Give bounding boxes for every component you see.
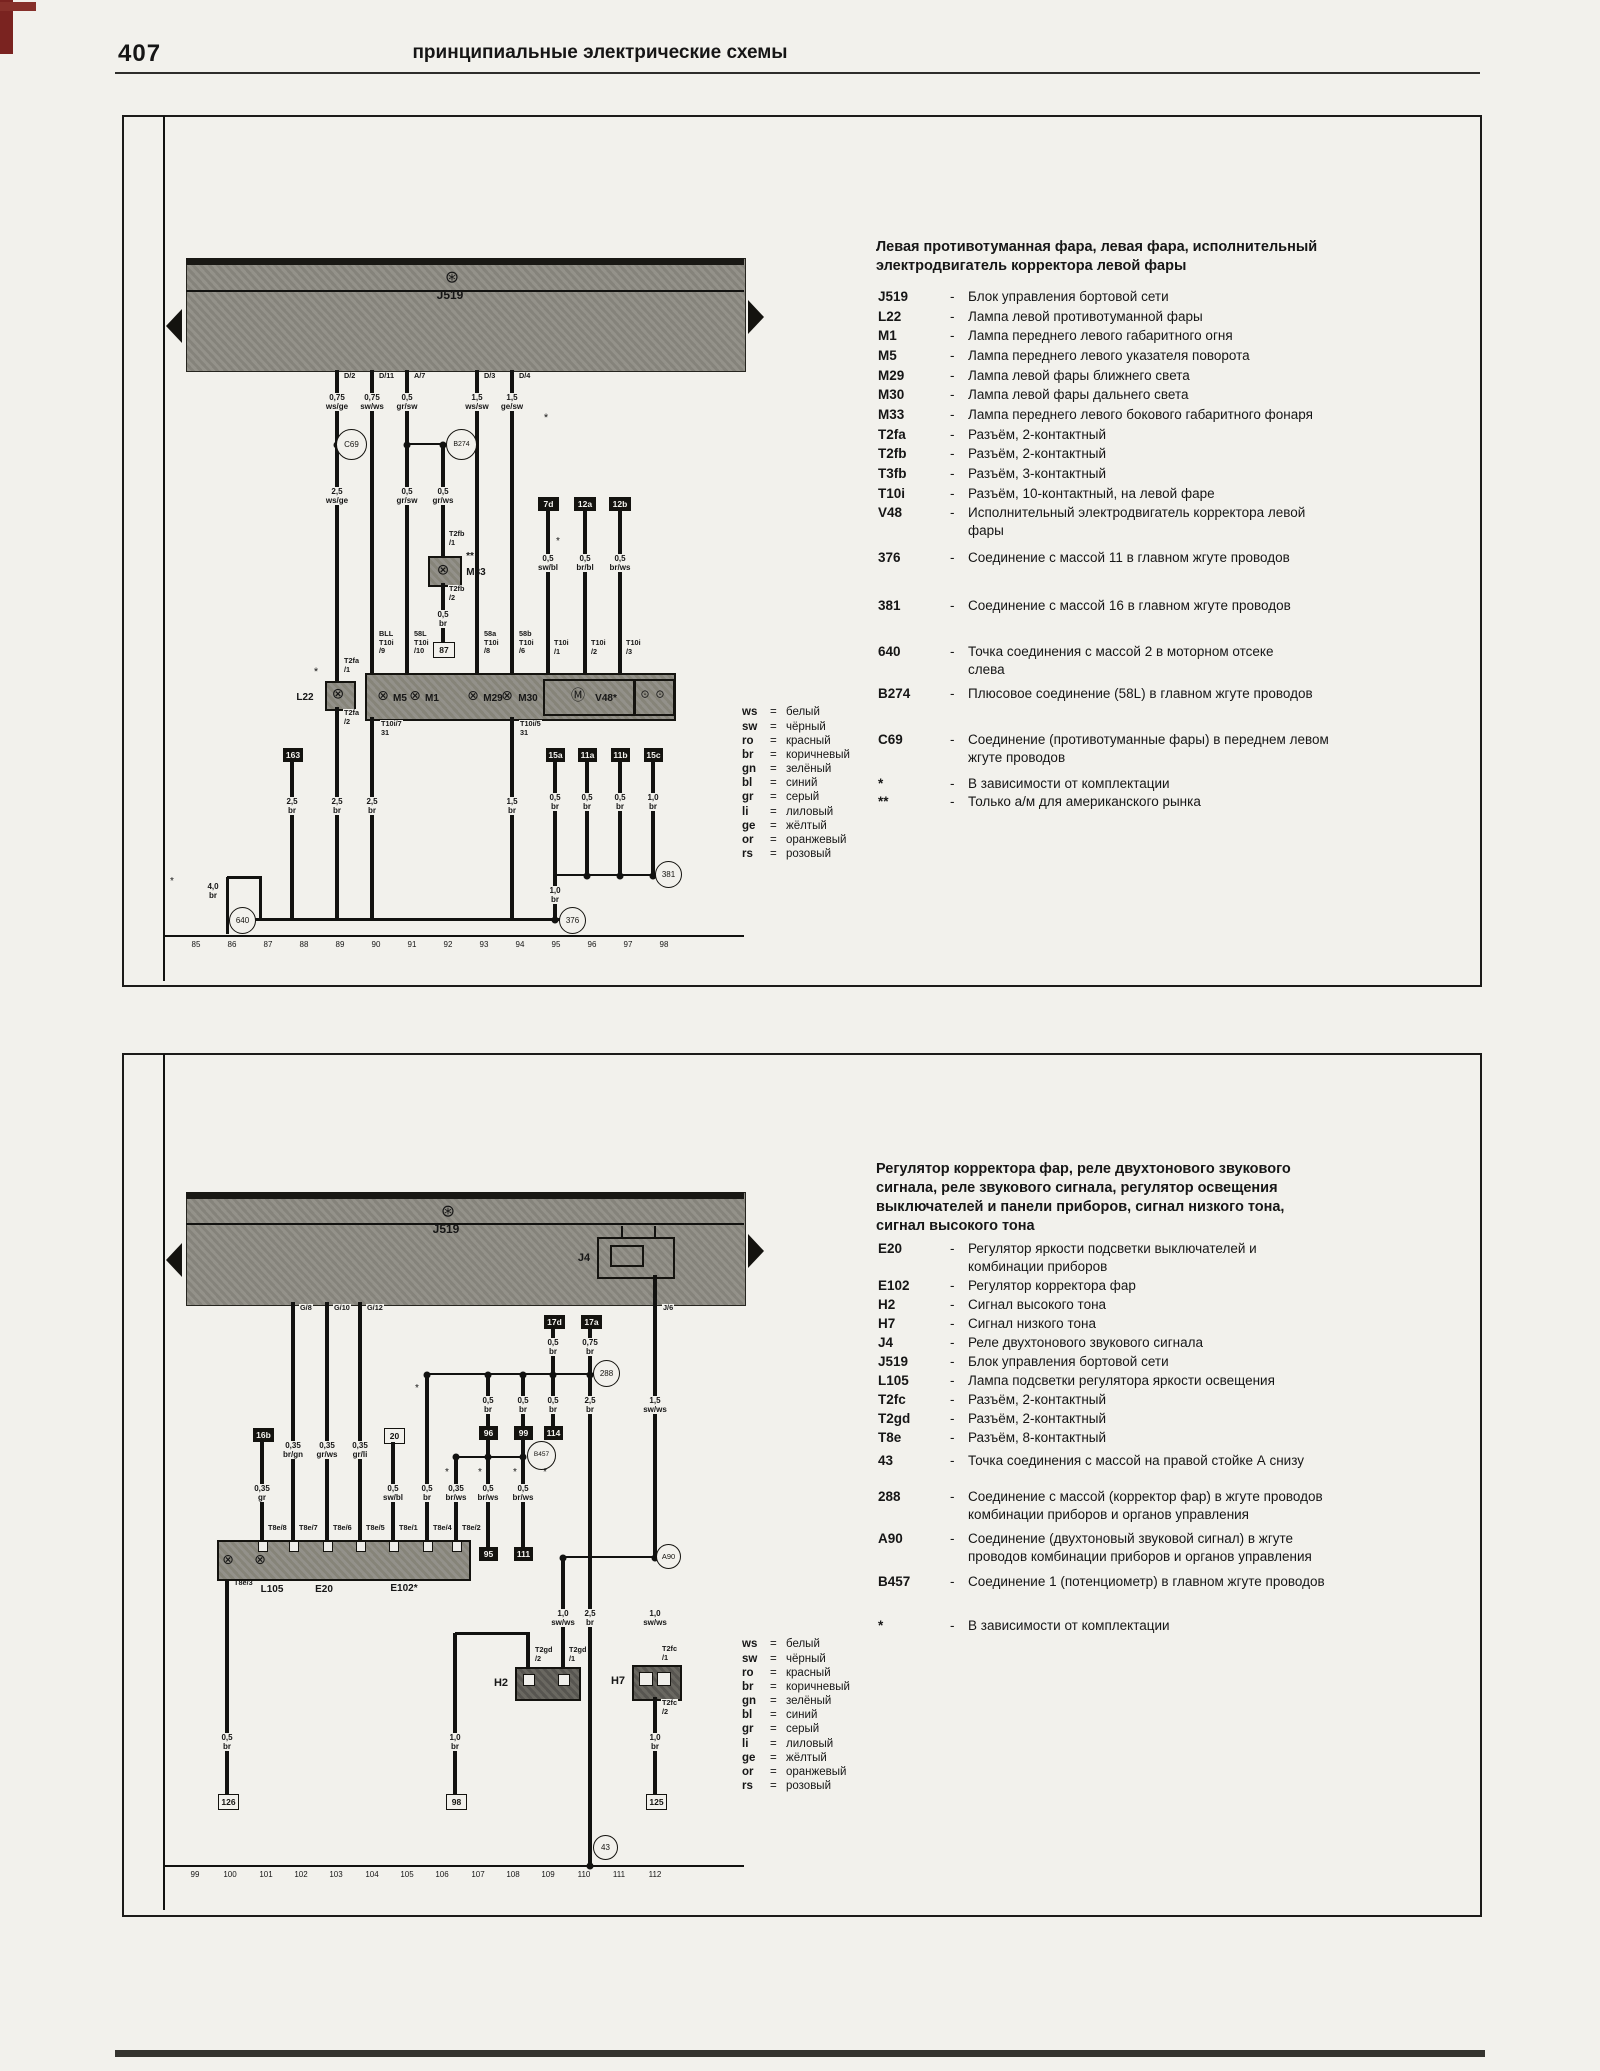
color-code-row: gr=серый bbox=[742, 1723, 850, 1737]
color-name: белый bbox=[786, 707, 820, 719]
legend-item: J519-Блок управления бортовой сети bbox=[878, 1353, 1438, 1371]
wire bbox=[186, 290, 744, 292]
legend-item-key: T2fb bbox=[878, 445, 950, 463]
diagram-text: 97 bbox=[624, 941, 633, 949]
legend-item: T2fa-Разъём, 2-контактный bbox=[878, 426, 1438, 444]
pin-contact bbox=[639, 1672, 653, 1686]
legend-title: Регулятор корректора фар, реле двухтонов… bbox=[876, 1160, 1416, 1237]
pin-label: G/8 bbox=[299, 1304, 313, 1313]
wire-color-table: ws=белыйsw=чёрныйro=красныйbr=коричневый… bbox=[742, 1638, 850, 1794]
legend-item: A90-Соединение (двухтоновый звуковой сиг… bbox=[878, 1530, 1438, 1567]
legend-item-dash: - bbox=[950, 445, 968, 463]
color-code: rs bbox=[742, 1781, 770, 1793]
diagram-text: 105 bbox=[400, 1871, 413, 1879]
color-code: gr bbox=[742, 792, 770, 804]
wire bbox=[427, 1373, 600, 1376]
wire-label: 0,35 gr/li bbox=[351, 1441, 369, 1459]
legend-item-text: Разъём, 2-контактный bbox=[968, 1391, 1106, 1409]
equals-sign: = bbox=[770, 849, 786, 861]
legend-item: E102-Регулятор корректора фар bbox=[878, 1277, 1438, 1295]
wire-label: 0,5 br/ws bbox=[512, 1484, 535, 1502]
crossref-box-163: 163 bbox=[283, 748, 303, 762]
legend-item: L105-Лампа подсветки регулятора яркости … bbox=[878, 1372, 1438, 1390]
diagram-text: 92 bbox=[444, 941, 453, 949]
legend-item-text: В зависимости от комплектации bbox=[968, 775, 1170, 793]
color-name: жёлтый bbox=[786, 1753, 827, 1765]
pin-label: T8e/1 bbox=[398, 1524, 419, 1533]
color-code: ro bbox=[742, 1668, 770, 1680]
legend-item-dash: - bbox=[950, 1353, 968, 1371]
legend-item-dash: - bbox=[950, 406, 968, 424]
crossref-box-125: 125 bbox=[646, 1794, 667, 1810]
color-code-row: li=лиловый bbox=[742, 1737, 850, 1751]
bus-bar bbox=[186, 258, 746, 372]
footer-bar bbox=[115, 2050, 1485, 2057]
legend-item-key: T2fc bbox=[878, 1391, 950, 1409]
diagram-text: ** bbox=[466, 552, 474, 562]
wire bbox=[653, 1275, 657, 1558]
legend-item-text: Лампа левой фары ближнего света bbox=[968, 367, 1190, 385]
pin-label: T2gd /2 bbox=[534, 1646, 553, 1663]
wire bbox=[226, 877, 229, 934]
diagram-text: * bbox=[415, 1384, 419, 1394]
wire-label: 0,75 ws/ge bbox=[325, 393, 349, 411]
legend-item-dash: - bbox=[950, 327, 968, 345]
wire bbox=[526, 1633, 530, 1667]
wire bbox=[370, 717, 374, 921]
pin-label: T2fb /1 bbox=[448, 530, 465, 547]
legend-item-dash: - bbox=[950, 793, 968, 811]
legend-item-text: Разъём, 10-контактный, на левой фаре bbox=[968, 485, 1215, 503]
crossref-box-96: 96 bbox=[479, 1426, 498, 1440]
equals-sign: = bbox=[770, 1668, 786, 1680]
diagram-text: 94 bbox=[516, 941, 525, 949]
junction-circle-B274: B274 bbox=[446, 429, 477, 460]
wire-label: 0,5 br bbox=[546, 1396, 559, 1414]
wire bbox=[164, 1865, 744, 1867]
wire-label: 2,5 br bbox=[365, 797, 378, 815]
color-name: синий bbox=[786, 778, 817, 790]
equals-sign: = bbox=[770, 792, 786, 804]
legend-item-text: Разъём, 8-контактный bbox=[968, 1429, 1106, 1447]
legend-item: J4-Реле двухтонового звукового сигнала bbox=[878, 1334, 1438, 1352]
diagram-text: 93 bbox=[480, 941, 489, 949]
junction-dot bbox=[584, 873, 591, 880]
header-rule bbox=[115, 72, 1480, 74]
legend-item-dash: - bbox=[950, 775, 968, 793]
pin-label: T8e/7 bbox=[298, 1524, 319, 1533]
legend-item-key: E20 bbox=[878, 1240, 950, 1277]
wire bbox=[621, 1226, 623, 1237]
legend-item-dash: - bbox=[950, 504, 968, 541]
legend-item-text: Только а/м для американского рынка bbox=[968, 793, 1201, 811]
legend-item-text: Лампа переднего левого габаритного огня bbox=[968, 327, 1233, 345]
equals-sign: = bbox=[770, 1767, 786, 1779]
wire-label: 4,0 br bbox=[206, 882, 219, 900]
crossref-box-98: 98 bbox=[446, 1794, 467, 1810]
diagram-text: M30 bbox=[518, 694, 537, 704]
legend-item: *-В зависимости от комплектации bbox=[878, 1617, 1438, 1635]
crossref-box-126: 126 bbox=[218, 1794, 239, 1810]
diagram-text: 106 bbox=[435, 1871, 448, 1879]
wire bbox=[486, 1457, 490, 1548]
legend-item-dash: - bbox=[950, 1452, 968, 1470]
color-name: чёрный bbox=[786, 1654, 826, 1666]
wire-label: 0,35 gr/ws bbox=[316, 1441, 339, 1459]
legend-item-text: Блок управления бортовой сети bbox=[968, 288, 1169, 306]
diagram-text: 101 bbox=[259, 1871, 272, 1879]
legend-item-key: A90 bbox=[878, 1530, 950, 1567]
legend-item: M1-Лампа переднего левого габаритного ог… bbox=[878, 327, 1438, 345]
bus-bar-edge bbox=[186, 258, 744, 265]
wire bbox=[163, 1054, 165, 1910]
pin-label: J/6 bbox=[662, 1304, 674, 1313]
component-icon: ⊗ bbox=[377, 688, 389, 702]
color-code: br bbox=[742, 1682, 770, 1694]
crossref-box-15c: 15c bbox=[644, 748, 663, 762]
wire-label: 0,5 br bbox=[436, 610, 449, 628]
legend-item-key: B274 bbox=[878, 685, 950, 703]
pin-contact bbox=[356, 1541, 366, 1552]
pin-label: T2fc /1 bbox=[661, 1645, 678, 1662]
equals-sign: = bbox=[770, 835, 786, 847]
color-code: ge bbox=[742, 1753, 770, 1765]
wire-label: 0,5 br bbox=[220, 1733, 233, 1751]
wire-label: 0,5 sw/bl bbox=[537, 554, 559, 572]
wire bbox=[186, 1223, 744, 1225]
legend-item-dash: - bbox=[950, 643, 968, 680]
wire bbox=[510, 370, 514, 673]
equals-sign: = bbox=[770, 1696, 786, 1708]
legend-item-text: Разъём, 2-контактный bbox=[968, 1410, 1106, 1428]
diagram-text: * bbox=[544, 413, 548, 424]
diagram-text: E102* bbox=[390, 1584, 417, 1594]
color-code-row: ws=белый bbox=[742, 706, 850, 720]
wire-label: 0,5 br bbox=[548, 793, 561, 811]
legend-item-dash: - bbox=[950, 1315, 968, 1333]
color-name: оранжевый bbox=[786, 1767, 846, 1779]
junction-circle-288: 288 bbox=[593, 1360, 620, 1387]
pin-contact bbox=[558, 1674, 570, 1686]
color-code: ge bbox=[742, 821, 770, 833]
diagram-text: 88 bbox=[300, 941, 309, 949]
wire bbox=[358, 1302, 362, 1541]
diagram-text: 91 bbox=[408, 941, 417, 949]
equals-sign: = bbox=[770, 821, 786, 833]
wire-label: 1,5 ge/sw bbox=[500, 393, 524, 411]
diagram-text: J519 bbox=[433, 1223, 460, 1235]
crossref-box-17d: 17d bbox=[544, 1315, 565, 1329]
pin-contact bbox=[289, 1541, 299, 1552]
color-code-row: ro=красный bbox=[742, 734, 850, 748]
wire-label: 0,5 br/ws bbox=[477, 1484, 500, 1502]
legend-item-key: 288 bbox=[878, 1488, 950, 1525]
wire-label: 1,0 br bbox=[548, 886, 561, 904]
wire bbox=[521, 1457, 525, 1548]
equals-sign: = bbox=[770, 707, 786, 719]
color-code-row: bl=синий bbox=[742, 1709, 850, 1723]
legend-item-dash: - bbox=[950, 308, 968, 326]
equals-sign: = bbox=[770, 1654, 786, 1666]
legend-item-key: 640 bbox=[878, 643, 950, 680]
pin-label: T8e/5 bbox=[365, 1524, 386, 1533]
legend-item-text: Соединение (противотуманные фары) в пере… bbox=[968, 731, 1329, 768]
wire-label: 0,75 sw/ws bbox=[359, 393, 385, 411]
pin-contact bbox=[452, 1541, 462, 1552]
pin-label: D/3 bbox=[483, 372, 496, 381]
wire-label: 0,5 br bbox=[516, 1396, 529, 1414]
legend-item-text: Блок управления бортовой сети bbox=[968, 1353, 1169, 1371]
pin-label: T2fa /2 bbox=[343, 709, 360, 726]
legend-item-text: Исполнительный электродвигатель корректо… bbox=[968, 504, 1305, 541]
diagram-text: H7 bbox=[611, 1676, 625, 1687]
legend-item-text: Лампа переднего левого указателя поворот… bbox=[968, 347, 1250, 365]
diagram-text: * bbox=[445, 1468, 449, 1478]
legend-item-key: * bbox=[878, 1617, 950, 1635]
color-code: gn bbox=[742, 1696, 770, 1708]
component-icon: ⊗ bbox=[467, 688, 479, 702]
wire-label: 0,5 br bbox=[613, 793, 626, 811]
legend-item-text: Лампа левой фары дальнего света bbox=[968, 386, 1189, 404]
legend-item-key: M33 bbox=[878, 406, 950, 424]
legend-item-dash: - bbox=[950, 1334, 968, 1352]
color-name: розовый bbox=[786, 1781, 831, 1793]
diagram-text: 86 bbox=[228, 941, 237, 949]
legend-item: L22-Лампа левой противотуманной фары bbox=[878, 308, 1438, 326]
wire bbox=[243, 918, 568, 921]
color-name: зелёный bbox=[786, 764, 831, 776]
wire bbox=[164, 935, 744, 937]
wire-label: 2,5 ws/ge bbox=[325, 487, 349, 505]
legend-item-text: Лампа подсветки регулятора яркости освещ… bbox=[968, 1372, 1275, 1390]
legend-item-key: ** bbox=[878, 793, 950, 811]
pin-contact bbox=[423, 1541, 433, 1552]
legend-item-text: Разъём, 2-контактный bbox=[968, 445, 1106, 463]
legend-item-text: Соединение с массой (корректор фар) в жг… bbox=[968, 1488, 1323, 1525]
color-name: розовый bbox=[786, 849, 831, 861]
wire-label: 0,5 br bbox=[546, 1338, 559, 1356]
pin-label: T2fa /1 bbox=[343, 657, 360, 674]
color-name: лиловый bbox=[786, 1739, 833, 1751]
diagram-text: J4 bbox=[578, 1253, 590, 1264]
junction-dot bbox=[617, 873, 624, 880]
wire-label: 0,5 gr/sw bbox=[396, 487, 419, 505]
legend-item: M29-Лампа левой фары ближнего света bbox=[878, 367, 1438, 385]
color-code-row: or=оранжевый bbox=[742, 1766, 850, 1780]
crossref-box-12b: 12b bbox=[609, 497, 631, 511]
pin-label: A/7 bbox=[413, 372, 426, 381]
diagram-text: J519 bbox=[437, 289, 464, 301]
wire bbox=[546, 511, 550, 679]
crossref-box-16b: 16b bbox=[253, 1428, 274, 1442]
legend-item-key: T8e bbox=[878, 1429, 950, 1447]
diagram-text: M1 bbox=[425, 694, 439, 704]
diagram-text: M33 bbox=[466, 568, 485, 578]
legend-item: E20-Регулятор яркости подсветки выключат… bbox=[878, 1240, 1438, 1277]
pin-contact bbox=[323, 1541, 333, 1552]
wire-label: 0,35 gr bbox=[253, 1484, 271, 1502]
crossref-box-7d: 7d bbox=[538, 497, 559, 511]
legend-item: 640-Точка соединения с массой 2 в моторн… bbox=[878, 643, 1438, 680]
diagram-text: 110 bbox=[578, 1871, 591, 1879]
diagram-text: * bbox=[543, 1468, 547, 1478]
legend-item-key: M30 bbox=[878, 386, 950, 404]
color-code: rs bbox=[742, 849, 770, 861]
color-code: ws bbox=[742, 1639, 770, 1651]
pin-label: T8e/8 bbox=[267, 1524, 288, 1533]
junction-circle-C69: C69 bbox=[336, 429, 367, 460]
pin-contact bbox=[523, 1674, 535, 1686]
wire bbox=[618, 762, 622, 876]
color-code-row: sw=чёрный bbox=[742, 1652, 850, 1666]
crossref-box-12a: 12a bbox=[574, 497, 596, 511]
pin-label: T10i/5 31 bbox=[519, 720, 542, 737]
color-code: gn bbox=[742, 764, 770, 776]
pin-label: T8e/6 bbox=[332, 1524, 353, 1533]
equals-sign: = bbox=[770, 807, 786, 819]
legend-item-dash: - bbox=[950, 1240, 968, 1277]
diagram-text: 98 bbox=[660, 941, 669, 949]
color-code: ro bbox=[742, 736, 770, 748]
crossref-box-95: 95 bbox=[479, 1547, 498, 1561]
wire bbox=[335, 370, 339, 682]
legend-item-text: Лампа переднего левого бокового габаритн… bbox=[968, 406, 1313, 424]
bus-arrow-left-icon bbox=[166, 309, 182, 343]
diagram-text: 111 bbox=[613, 1871, 625, 1879]
color-code-row: rs=розовый bbox=[742, 848, 850, 862]
wire-label: 1,0 sw/ws bbox=[642, 1609, 668, 1627]
color-code-row: ge=жёлтый bbox=[742, 820, 850, 834]
legend-item-key: J519 bbox=[878, 288, 950, 306]
legend-item-key: T3fb bbox=[878, 465, 950, 483]
legend-item-dash: - bbox=[950, 1277, 968, 1295]
color-code: ws bbox=[742, 707, 770, 719]
legend-item-dash: - bbox=[950, 597, 968, 615]
crossref-box-99: 99 bbox=[514, 1426, 533, 1440]
color-name: белый bbox=[786, 1639, 820, 1651]
color-name: коричневый bbox=[786, 1682, 850, 1694]
legend-item-dash: - bbox=[950, 1530, 968, 1567]
equals-sign: = bbox=[770, 722, 786, 734]
equals-sign: = bbox=[770, 764, 786, 776]
color-code-row: ge=жёлтый bbox=[742, 1752, 850, 1766]
wire-label: 2,5 br bbox=[583, 1609, 596, 1627]
legend-item: H2-Сигнал высокого тона bbox=[878, 1296, 1438, 1314]
color-name: красный bbox=[786, 1668, 831, 1680]
junction-circle-381: 381 bbox=[655, 861, 682, 888]
color-code: sw bbox=[742, 1654, 770, 1666]
legend-title: Левая противотуманная фара, левая фара, … bbox=[876, 238, 1416, 276]
legend-item-key: 43 bbox=[878, 1452, 950, 1470]
color-name: коричневый bbox=[786, 750, 850, 762]
legend-item-text: Разъём, 3-контактный bbox=[968, 465, 1106, 483]
legend-item-text: Разъём, 2-контактный bbox=[968, 426, 1106, 444]
equals-sign: = bbox=[770, 736, 786, 748]
diagram-text: 103 bbox=[329, 1871, 342, 1879]
legend-item-key: M29 bbox=[878, 367, 950, 385]
legend-item: M5-Лампа переднего левого указателя пово… bbox=[878, 347, 1438, 365]
crossref-box-87: 87 bbox=[433, 642, 455, 658]
pin-label: T10i/7 31 bbox=[380, 720, 403, 737]
scanned-manual-page: { "page": {"number": "407", "title": "пр… bbox=[0, 0, 1600, 2071]
legend-item-key: B457 bbox=[878, 1573, 950, 1591]
legend-item: T2fb-Разъём, 2-контактный bbox=[878, 445, 1438, 463]
legend-item: B457-Соединение 1 (потенциометр) в главн… bbox=[878, 1573, 1438, 1591]
pin-label: D/2 bbox=[343, 372, 356, 381]
color-code-row: or=оранжевый bbox=[742, 834, 850, 848]
component-icon: ⊗ bbox=[254, 1552, 266, 1566]
color-code-row: br=коричневый bbox=[742, 1681, 850, 1695]
color-name: жёлтый bbox=[786, 821, 827, 833]
component-icon: ⊛ bbox=[441, 1203, 455, 1220]
wire-label: 0,5 br bbox=[580, 793, 593, 811]
diagram-text: V48* bbox=[595, 694, 617, 704]
diagram-text: L22 bbox=[296, 693, 313, 703]
color-code: sw bbox=[742, 722, 770, 734]
crossref-box-114: 114 bbox=[544, 1426, 563, 1440]
scan-artifact bbox=[0, 2, 36, 11]
legend-item-key: E102 bbox=[878, 1277, 950, 1295]
legend-item-dash: - bbox=[950, 386, 968, 404]
legend-item: M33-Лампа переднего левого бокового габа… bbox=[878, 406, 1438, 424]
legend-item-dash: - bbox=[950, 731, 968, 768]
wire-label: 1,0 br bbox=[448, 1733, 461, 1751]
legend-item-key: 376 bbox=[878, 549, 950, 567]
pin-label: D/11 bbox=[378, 372, 395, 381]
legend-item-key: J4 bbox=[878, 1334, 950, 1352]
equals-sign: = bbox=[770, 1724, 786, 1736]
wire-label: 0,5 gr/sw bbox=[396, 393, 419, 411]
diagram-text: * bbox=[314, 667, 318, 678]
component-outline bbox=[543, 679, 635, 716]
color-name: серый bbox=[786, 792, 819, 804]
wire-label: 1,0 br bbox=[646, 793, 659, 811]
legend-item-text: Соединение (двухтоновый звуковой сигнал)… bbox=[968, 1530, 1312, 1567]
legend-item: H7-Сигнал низкого тона bbox=[878, 1315, 1438, 1333]
legend-item-text: Сигнал высокого тона bbox=[968, 1296, 1106, 1314]
wire bbox=[290, 762, 294, 921]
component-icon: Ⓜ bbox=[571, 688, 585, 702]
legend-item-text: Регулятор корректора фар bbox=[968, 1277, 1136, 1295]
legend-item: V48-Исполнительный электродвигатель корр… bbox=[878, 504, 1438, 541]
pin-label: D/4 bbox=[518, 372, 531, 381]
legend-item-text: Соединение с массой 16 в главном жгуте п… bbox=[968, 597, 1291, 615]
bus-arrow-right-icon bbox=[748, 1234, 764, 1268]
wire-label: 0,5 br/bl bbox=[575, 554, 594, 572]
diagram-text: 112 bbox=[649, 1871, 662, 1879]
legend-item-dash: - bbox=[950, 426, 968, 444]
legend-item-dash: - bbox=[950, 1488, 968, 1525]
legend-item: 376-Соединение с массой 11 в главном жгу… bbox=[878, 549, 1438, 567]
wire-label: 1,0 br bbox=[648, 1733, 661, 1751]
crossref-box-15a: 15a bbox=[546, 748, 565, 762]
wire-label: 0,75 br bbox=[581, 1338, 599, 1356]
legend-item: T10i-Разъём, 10-контактный, на левой фар… bbox=[878, 485, 1438, 503]
legend-item-dash: - bbox=[950, 1296, 968, 1314]
pin-label: G/10 bbox=[333, 1304, 351, 1313]
legend-item-dash: - bbox=[950, 1573, 968, 1591]
component-icon: ⊗ bbox=[409, 688, 421, 702]
diagram-text: 87 bbox=[264, 941, 273, 949]
component-icon: ⊗ bbox=[501, 688, 513, 702]
diagram-text: * bbox=[513, 1468, 517, 1478]
pin-label: T10i /1 bbox=[553, 639, 570, 656]
wire-label: 0,5 gr/ws bbox=[432, 487, 455, 505]
wire-label: 1,5 ws/sw bbox=[464, 393, 490, 411]
color-code-row: li=лиловый bbox=[742, 805, 850, 819]
pin-label: 58L T10i /10 bbox=[413, 630, 430, 656]
wire-label: 2,5 br bbox=[330, 797, 343, 815]
